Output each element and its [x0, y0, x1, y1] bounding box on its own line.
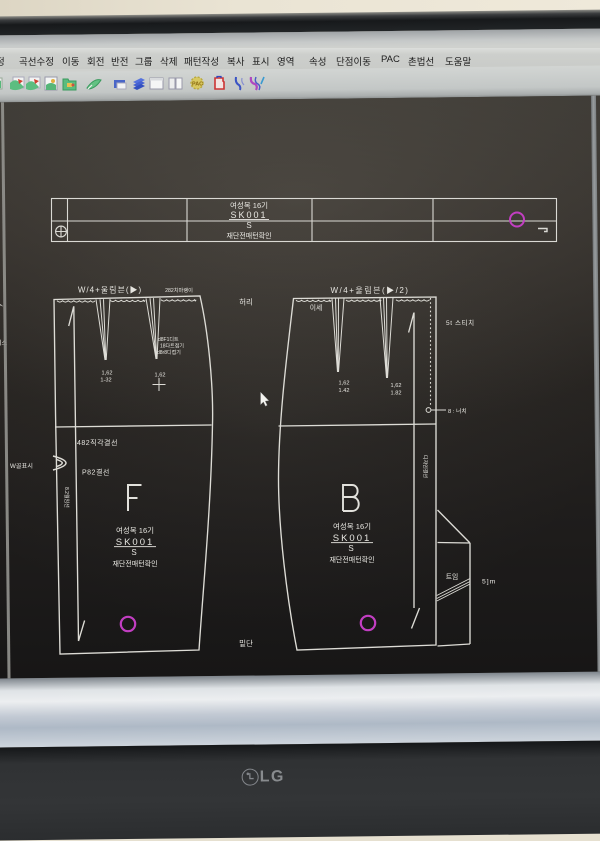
- svg-text:S: S: [348, 544, 353, 553]
- svg-text:1.82: 1.82: [391, 391, 402, 397]
- svg-text:1,62: 1,62: [339, 381, 350, 387]
- svg-text:허리: 허리: [239, 298, 253, 307]
- svg-text:여성복 16기: 여성복 16기: [230, 200, 268, 210]
- svg-text:PAC: PAC: [192, 82, 203, 88]
- svg-text:d8r8디접기: d8r8디접기: [157, 349, 181, 356]
- svg-text:트임: 트임: [446, 573, 459, 581]
- svg-text:1-32: 1-32: [100, 378, 111, 384]
- svg-text:1,62: 1,62: [391, 383, 402, 389]
- svg-text:여성복 16기: 여성복 16기: [116, 525, 154, 535]
- svg-text:이세: 이세: [310, 303, 323, 312]
- svg-text:482직각결선: 482직각결선: [77, 438, 118, 447]
- svg-text:282치마랭이: 282치마랭이: [165, 286, 193, 294]
- svg-text:d8F1디트: d8F1디트: [158, 336, 179, 343]
- svg-text:W/4+울림븐(▶): W/4+울림븐(▶): [78, 284, 142, 294]
- svg-text:P82결선: P82결선: [82, 468, 110, 477]
- svg-text:1,62: 1,62: [155, 373, 166, 379]
- svg-text:밑단: 밑단: [239, 638, 253, 648]
- svg-text:8.2월임선: 8.2월임선: [63, 487, 70, 508]
- svg-text:재단전매턴확인: 재단전매턴확인: [329, 555, 374, 564]
- svg-text:재단전매턴확인: 재단전매턴확인: [112, 559, 157, 568]
- svg-text:여성복 16기: 여성복 16기: [333, 521, 371, 531]
- svg-text:1,62: 1,62: [102, 371, 113, 377]
- svg-text:디쟈인결선: 디쟈인결선: [422, 455, 429, 478]
- svg-text:재단전매턴확인: 재단전매턴확인: [226, 231, 271, 240]
- svg-text:S: S: [131, 548, 136, 557]
- svg-text:1.42: 1.42: [339, 388, 350, 394]
- svg-text:8 : 너치: 8 : 너치: [448, 407, 467, 415]
- svg-text:18다트접기: 18다트접기: [160, 342, 184, 349]
- svg-text:5]m: 5]m: [482, 579, 496, 586]
- svg-text:W/4+울림븐(▶/2): W/4+울림븐(▶/2): [331, 285, 410, 295]
- svg-text:SK001: SK001: [230, 210, 267, 220]
- svg-text:W골표시: W골표시: [10, 463, 33, 470]
- svg-text:S: S: [246, 221, 251, 230]
- svg-text:5t 스티치: 5t 스티치: [446, 318, 475, 327]
